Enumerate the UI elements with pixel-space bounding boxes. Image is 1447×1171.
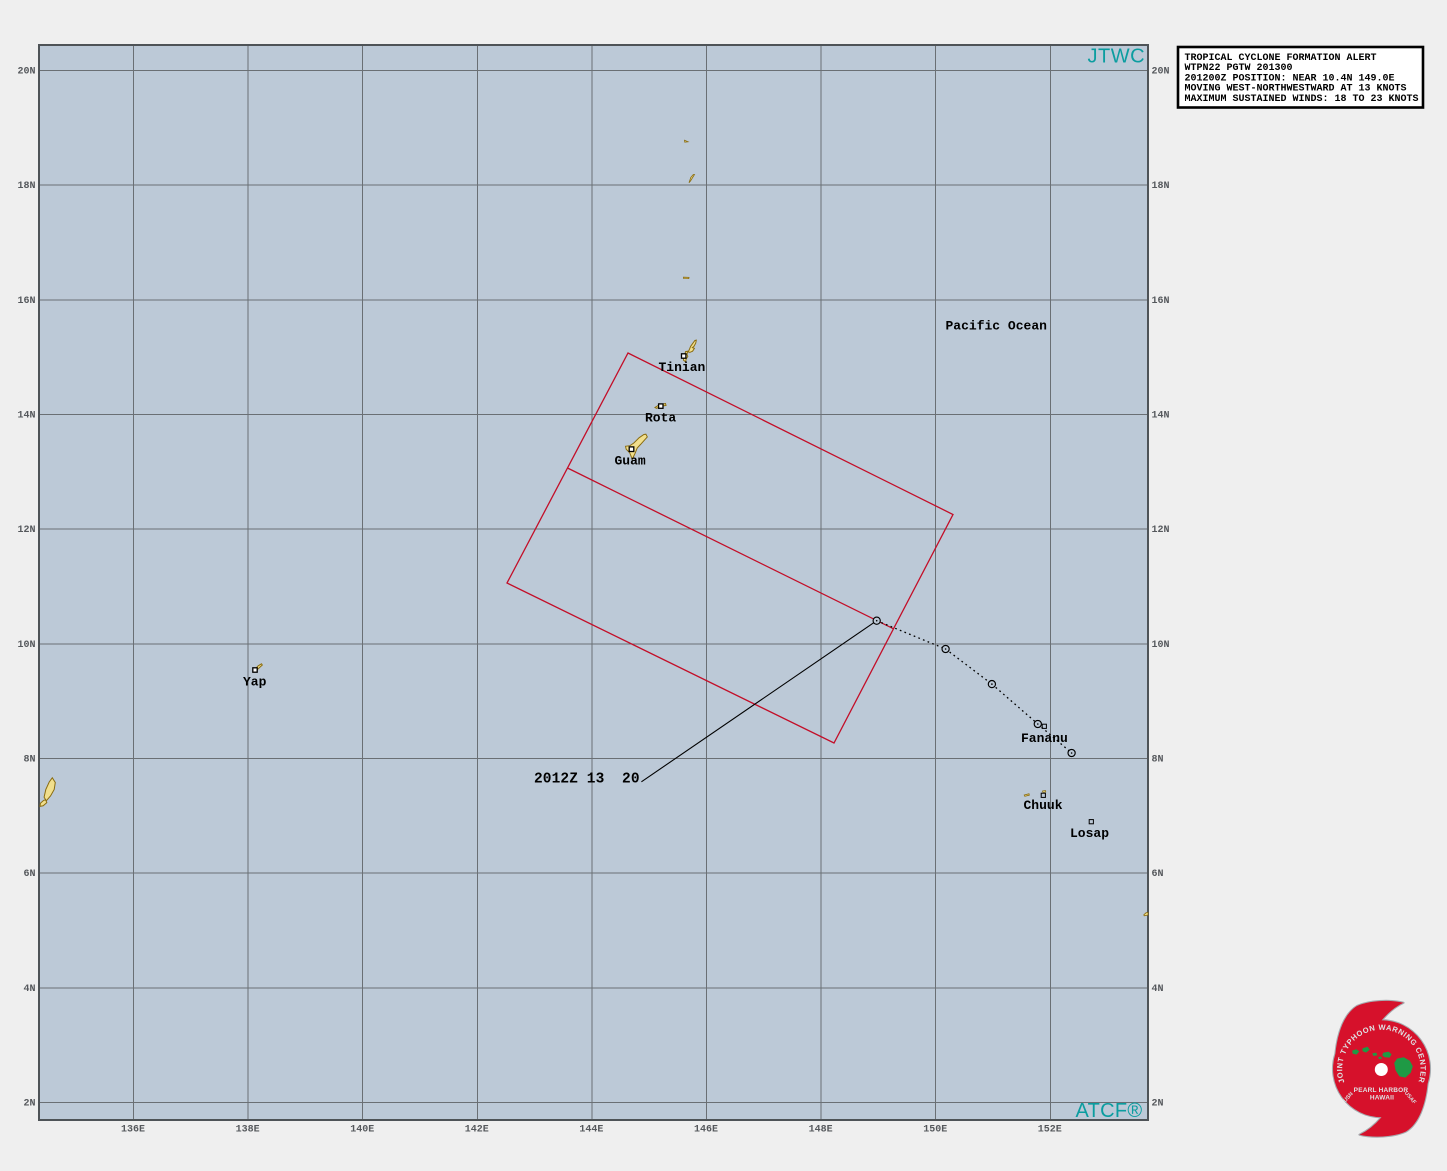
svg-text:10N: 10N — [17, 640, 35, 651]
svg-text:150E: 150E — [923, 1125, 947, 1136]
svg-text:16N: 16N — [1152, 296, 1170, 307]
svg-text:Chuuk: Chuuk — [1024, 798, 1063, 813]
svg-text:146E: 146E — [694, 1125, 718, 1136]
svg-text:18N: 18N — [17, 181, 35, 192]
svg-text:Guam: Guam — [615, 453, 646, 468]
svg-text:JTWC: JTWC — [1088, 46, 1146, 68]
svg-text:152E: 152E — [1038, 1125, 1062, 1136]
svg-text:14N: 14N — [17, 411, 35, 422]
svg-text:Losap: Losap — [1070, 826, 1109, 841]
svg-text:Fananu: Fananu — [1021, 731, 1068, 746]
svg-text:2N: 2N — [1152, 1098, 1164, 1109]
svg-text:142E: 142E — [465, 1125, 489, 1136]
svg-text:148E: 148E — [809, 1125, 833, 1136]
svg-text:2012Z 13 20: 2012Z 13 20 — [534, 771, 640, 787]
svg-text:14N: 14N — [1152, 411, 1170, 422]
svg-text:MAXIMUM SUSTAINED WINDS: 18 TO: MAXIMUM SUSTAINED WINDS: 18 TO 23 KNOTS — [1185, 94, 1419, 105]
svg-text:16N: 16N — [17, 296, 35, 307]
svg-text:Tinian: Tinian — [659, 360, 706, 375]
svg-text:6N: 6N — [1152, 869, 1164, 880]
svg-text:Yap: Yap — [243, 674, 267, 689]
svg-text:4N: 4N — [1152, 984, 1164, 995]
svg-text:ATCF®: ATCF® — [1076, 1100, 1143, 1122]
svg-text:12N: 12N — [1152, 525, 1170, 536]
svg-text:Pacific Ocean: Pacific Ocean — [946, 318, 1048, 333]
svg-text:136E: 136E — [121, 1125, 145, 1136]
svg-text:8N: 8N — [23, 755, 35, 766]
svg-text:PEARL HARBOR: PEARL HARBOR — [1354, 1087, 1409, 1094]
svg-text:12N: 12N — [17, 525, 35, 536]
svg-text:144E: 144E — [579, 1125, 603, 1136]
svg-text:140E: 140E — [350, 1125, 374, 1136]
svg-text:18N: 18N — [1152, 181, 1170, 192]
svg-text:Rota: Rota — [645, 410, 676, 425]
svg-text:10N: 10N — [1152, 640, 1170, 651]
svg-text:HAWAII: HAWAII — [1370, 1095, 1394, 1102]
svg-text:20N: 20N — [17, 67, 35, 78]
svg-text:138E: 138E — [236, 1125, 260, 1136]
svg-text:20N: 20N — [1152, 67, 1170, 78]
svg-text:8N: 8N — [1152, 755, 1164, 766]
svg-text:6N: 6N — [23, 869, 35, 880]
svg-text:2N: 2N — [23, 1098, 35, 1109]
svg-text:4N: 4N — [23, 984, 35, 995]
